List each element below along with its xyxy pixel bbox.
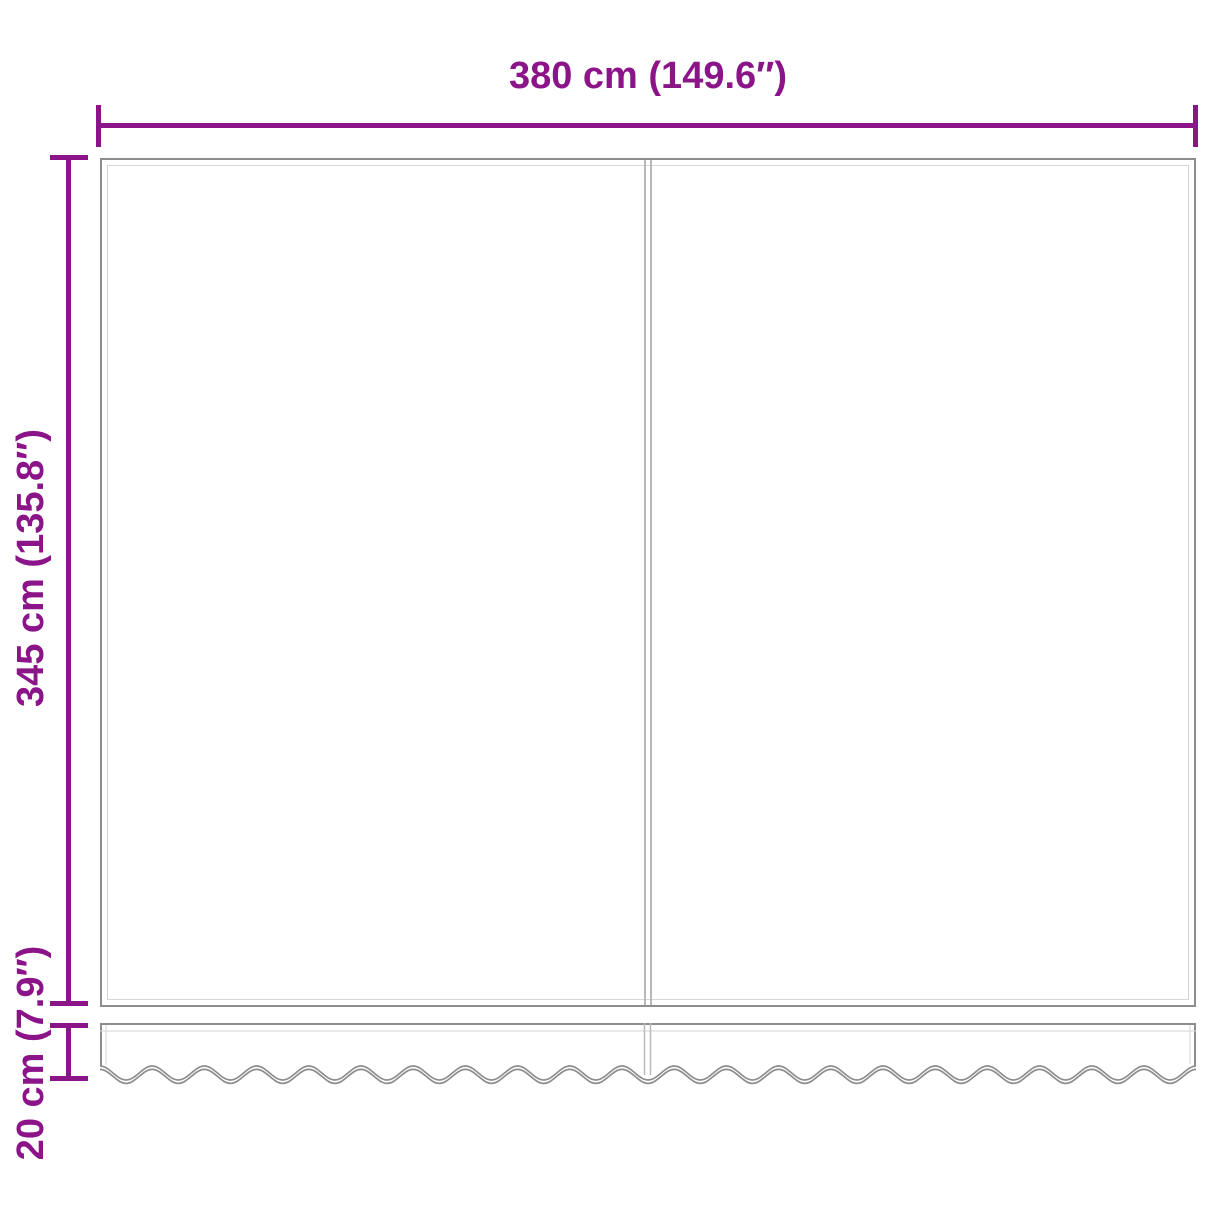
valance-scalloped-hem-line xyxy=(100,1069,1196,1083)
height-dimension-line xyxy=(66,158,71,1005)
valance-dimension-label: 20 cm (7.9″) xyxy=(12,946,50,1161)
awning-fabric-panel xyxy=(100,158,1196,1007)
stitch-line-border xyxy=(107,165,1189,1000)
valance-strip xyxy=(100,1023,1196,1093)
height-dimension-label: 345 cm (135.8″) xyxy=(12,429,50,707)
valance-dimension-tick-top xyxy=(50,1023,88,1028)
valance-dimension-line xyxy=(66,1026,71,1078)
valance-dimension-tick-bottom xyxy=(50,1076,88,1081)
width-dimension-label: 380 cm (149.6″) xyxy=(100,57,1196,95)
width-dimension-tick-right xyxy=(1193,105,1198,147)
awning-fabric-dimension-diagram: 380 cm (149.6″) 345 cm (135.8″) 20 cm (7… xyxy=(0,0,1214,1214)
width-dimension-line xyxy=(100,123,1196,128)
height-dimension-tick-top xyxy=(50,155,88,160)
height-dimension-tick-bottom xyxy=(50,1001,88,1006)
center-seam-line-left xyxy=(644,160,646,1005)
width-dimension-tick-left xyxy=(96,105,101,147)
center-seam-line-right xyxy=(650,160,652,1005)
